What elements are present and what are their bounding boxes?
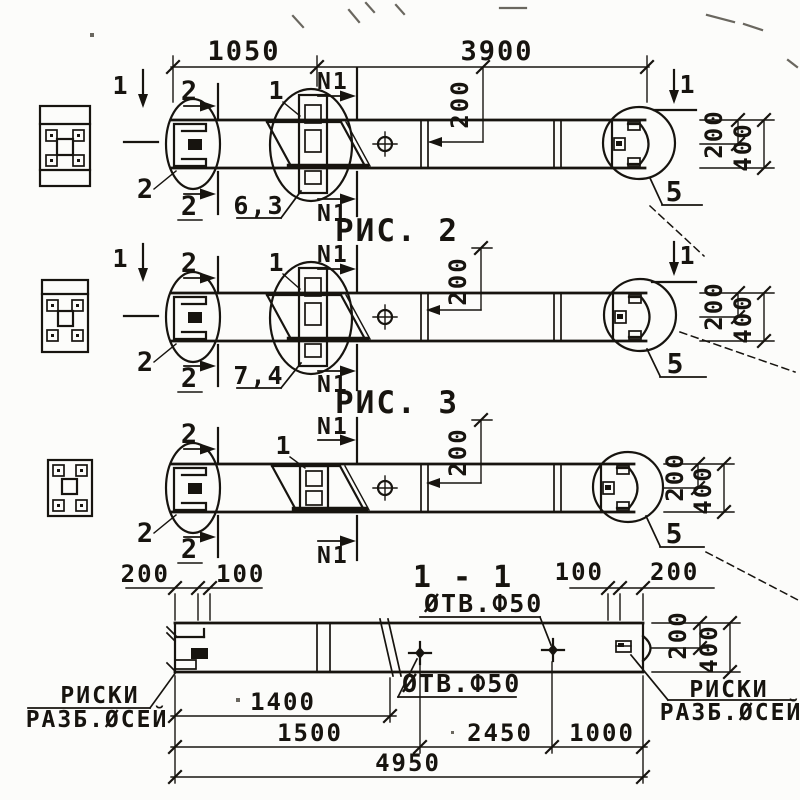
left-end-riski-marks [167,627,208,672]
technical-drawing-page: 105039002002221N1N16,3115200400РИС. 2200… [0,0,800,800]
lifting-loop-icon [373,132,397,156]
label-s-dim-200-left: 200 [121,560,170,588]
label-s-dim-400-rdim: 400 [695,624,723,673]
label-dim-1050: 1050 [207,36,280,67]
label-b3-n1-top: N1 [317,414,349,440]
joint-marks [317,619,401,676]
label-b3-dim-200-right: 200 [661,452,689,501]
label-b1-dim-400-right: 400 [729,122,757,171]
label-b2-dim-400-right: 400 [729,294,757,343]
label-b3-n1-bottom: N1 [317,543,349,569]
drawing-canvas: 105039002002221N1N16,3115200400РИС. 2200… [0,0,800,800]
label-s-dim-200-rdim: 200 [664,610,692,659]
label-b1-section1-right: 1 [679,70,696,99]
label-s-dim-200-right: 200 [650,558,699,586]
label-b2-section2-top: 2 [181,248,199,279]
label-b1-leader-1: 1 [268,76,285,105]
hole-mark-icon-left [409,642,431,664]
label-s-dim-100-right: 100 [555,558,604,586]
label-b3-dim-200-mid: 200 [444,427,472,476]
label-b3-detail-5: 5 [666,517,685,550]
label-b3-section2-bottom: 2 [181,534,199,565]
label-b2-section2-bottom: 2 [181,363,199,394]
label-b1-n1-top: N1 [317,69,349,95]
label-dim-1400: 1400 [250,688,316,716]
label-b1-section2-bottom: 2 [181,191,199,222]
label-b1-leader-2: 2 [137,174,155,205]
label-b3-leader-2: 2 [137,518,155,549]
label-dim-1500: 1500 [277,719,343,747]
left-end-detail-oval [166,99,220,189]
label-b2-dim-200-mid: 200 [444,256,472,305]
label-riski-left-line2: РАЗБ.ØСЕЙ [26,705,169,733]
label-b2-weld-7-4: 7,4 [233,361,284,390]
label-dim-3900: 3900 [460,36,533,67]
label-dim-2450: 2450 [467,719,533,747]
mid-joint-detail [267,262,370,374]
label-note-otv-f50-bottom: ØТВ.Ф50 [401,669,521,698]
joint-marks [421,293,561,341]
label-b3-leader-1: 1 [275,431,292,460]
lifting-loop-icon [373,476,397,500]
section-symbol-1 [40,106,90,186]
label-b1-section1-left: 1 [112,71,129,100]
left-end-detail-oval [166,443,220,533]
label-b2-detail-5: 5 [667,347,686,380]
section-symbol-2 [42,280,88,352]
label-b1-weld-6-3: 6,3 [233,191,284,220]
label-b3-section2-top: 2 [181,419,199,450]
label-b2-n1-top: N1 [317,242,349,268]
leader-lines [290,457,704,547]
label-riski-right-line2: РАЗБ.ØСЕЙ [660,698,800,726]
label-dim-1000: 1000 [569,719,635,747]
label-b2-dim-200-right: 200 [700,281,728,330]
label-b1-dim-200-right: 200 [700,109,728,158]
label-riski-left-line1: РИСКИ [60,683,139,709]
hole-mark-icon-right [542,639,564,661]
label-b2-leader-2: 2 [137,347,155,378]
left-end-detail-oval [166,272,220,362]
label-caption-fig-3: РИС. 3 [335,385,459,421]
label-b2-leader-1: 1 [268,248,285,277]
label-b2-section1-right: 1 [679,241,696,270]
label-b1-dim-200-mid: 200 [446,79,474,128]
label-b2-section1-left: 1 [112,244,129,273]
label-s-dim-100-left: 100 [216,560,265,588]
label-b3-dim-400-right: 400 [689,465,717,514]
lifting-loop-icon [373,305,397,329]
joint-marks [421,464,561,512]
mid-joint-detail [272,466,369,510]
label-note-otv-f50-top: ØТВ.Ф50 [423,589,543,618]
label-dim-4950: 4950 [375,749,441,777]
label-b1-section2-top: 2 [181,76,199,107]
mid-joint-detail [267,89,370,201]
section-symbol-3 [48,460,92,516]
label-caption-fig-2: РИС. 2 [335,213,459,249]
label-b1-detail-5: 5 [666,175,685,208]
